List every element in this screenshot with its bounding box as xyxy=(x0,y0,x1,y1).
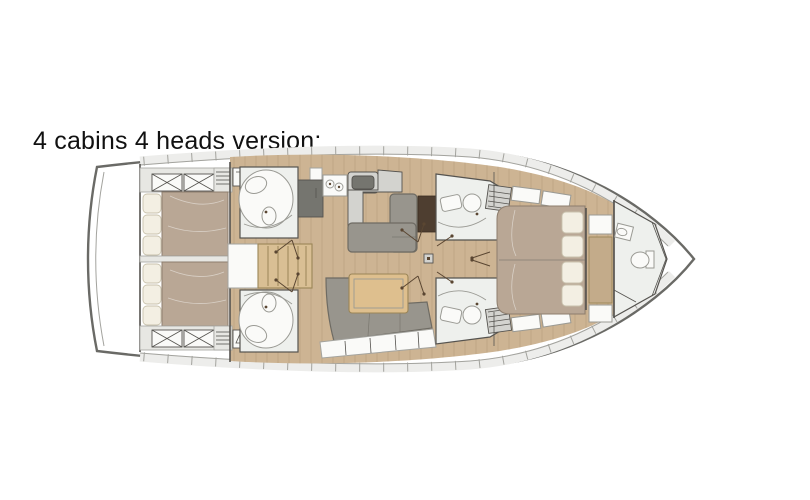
aft-head-port xyxy=(239,290,298,352)
bow-head xyxy=(614,200,667,318)
bow-wardrobe xyxy=(589,237,612,303)
aft-cabin-port xyxy=(140,262,232,350)
boat-floorplan-diagram xyxy=(0,0,810,500)
mast xyxy=(424,254,433,263)
page: 4 cabins 4 heads version: xyxy=(0,0,810,500)
aft-cabin-divider xyxy=(140,256,232,262)
aft-bed-port xyxy=(162,262,228,326)
fridge xyxy=(298,180,323,217)
nav-seat xyxy=(348,223,416,252)
fwd-head-toilet-top xyxy=(463,194,481,212)
chart-table xyxy=(418,196,438,232)
companionway-stairs xyxy=(258,244,312,288)
engine-box xyxy=(228,244,258,288)
aft-bed-starboard xyxy=(162,192,228,256)
salon-table xyxy=(349,274,408,313)
aft-head-starboard xyxy=(239,167,298,238)
fwd-head-toilet-bottom xyxy=(463,306,481,324)
aft-cabin-starboard xyxy=(140,168,232,256)
bow-head-toilet xyxy=(631,252,649,268)
